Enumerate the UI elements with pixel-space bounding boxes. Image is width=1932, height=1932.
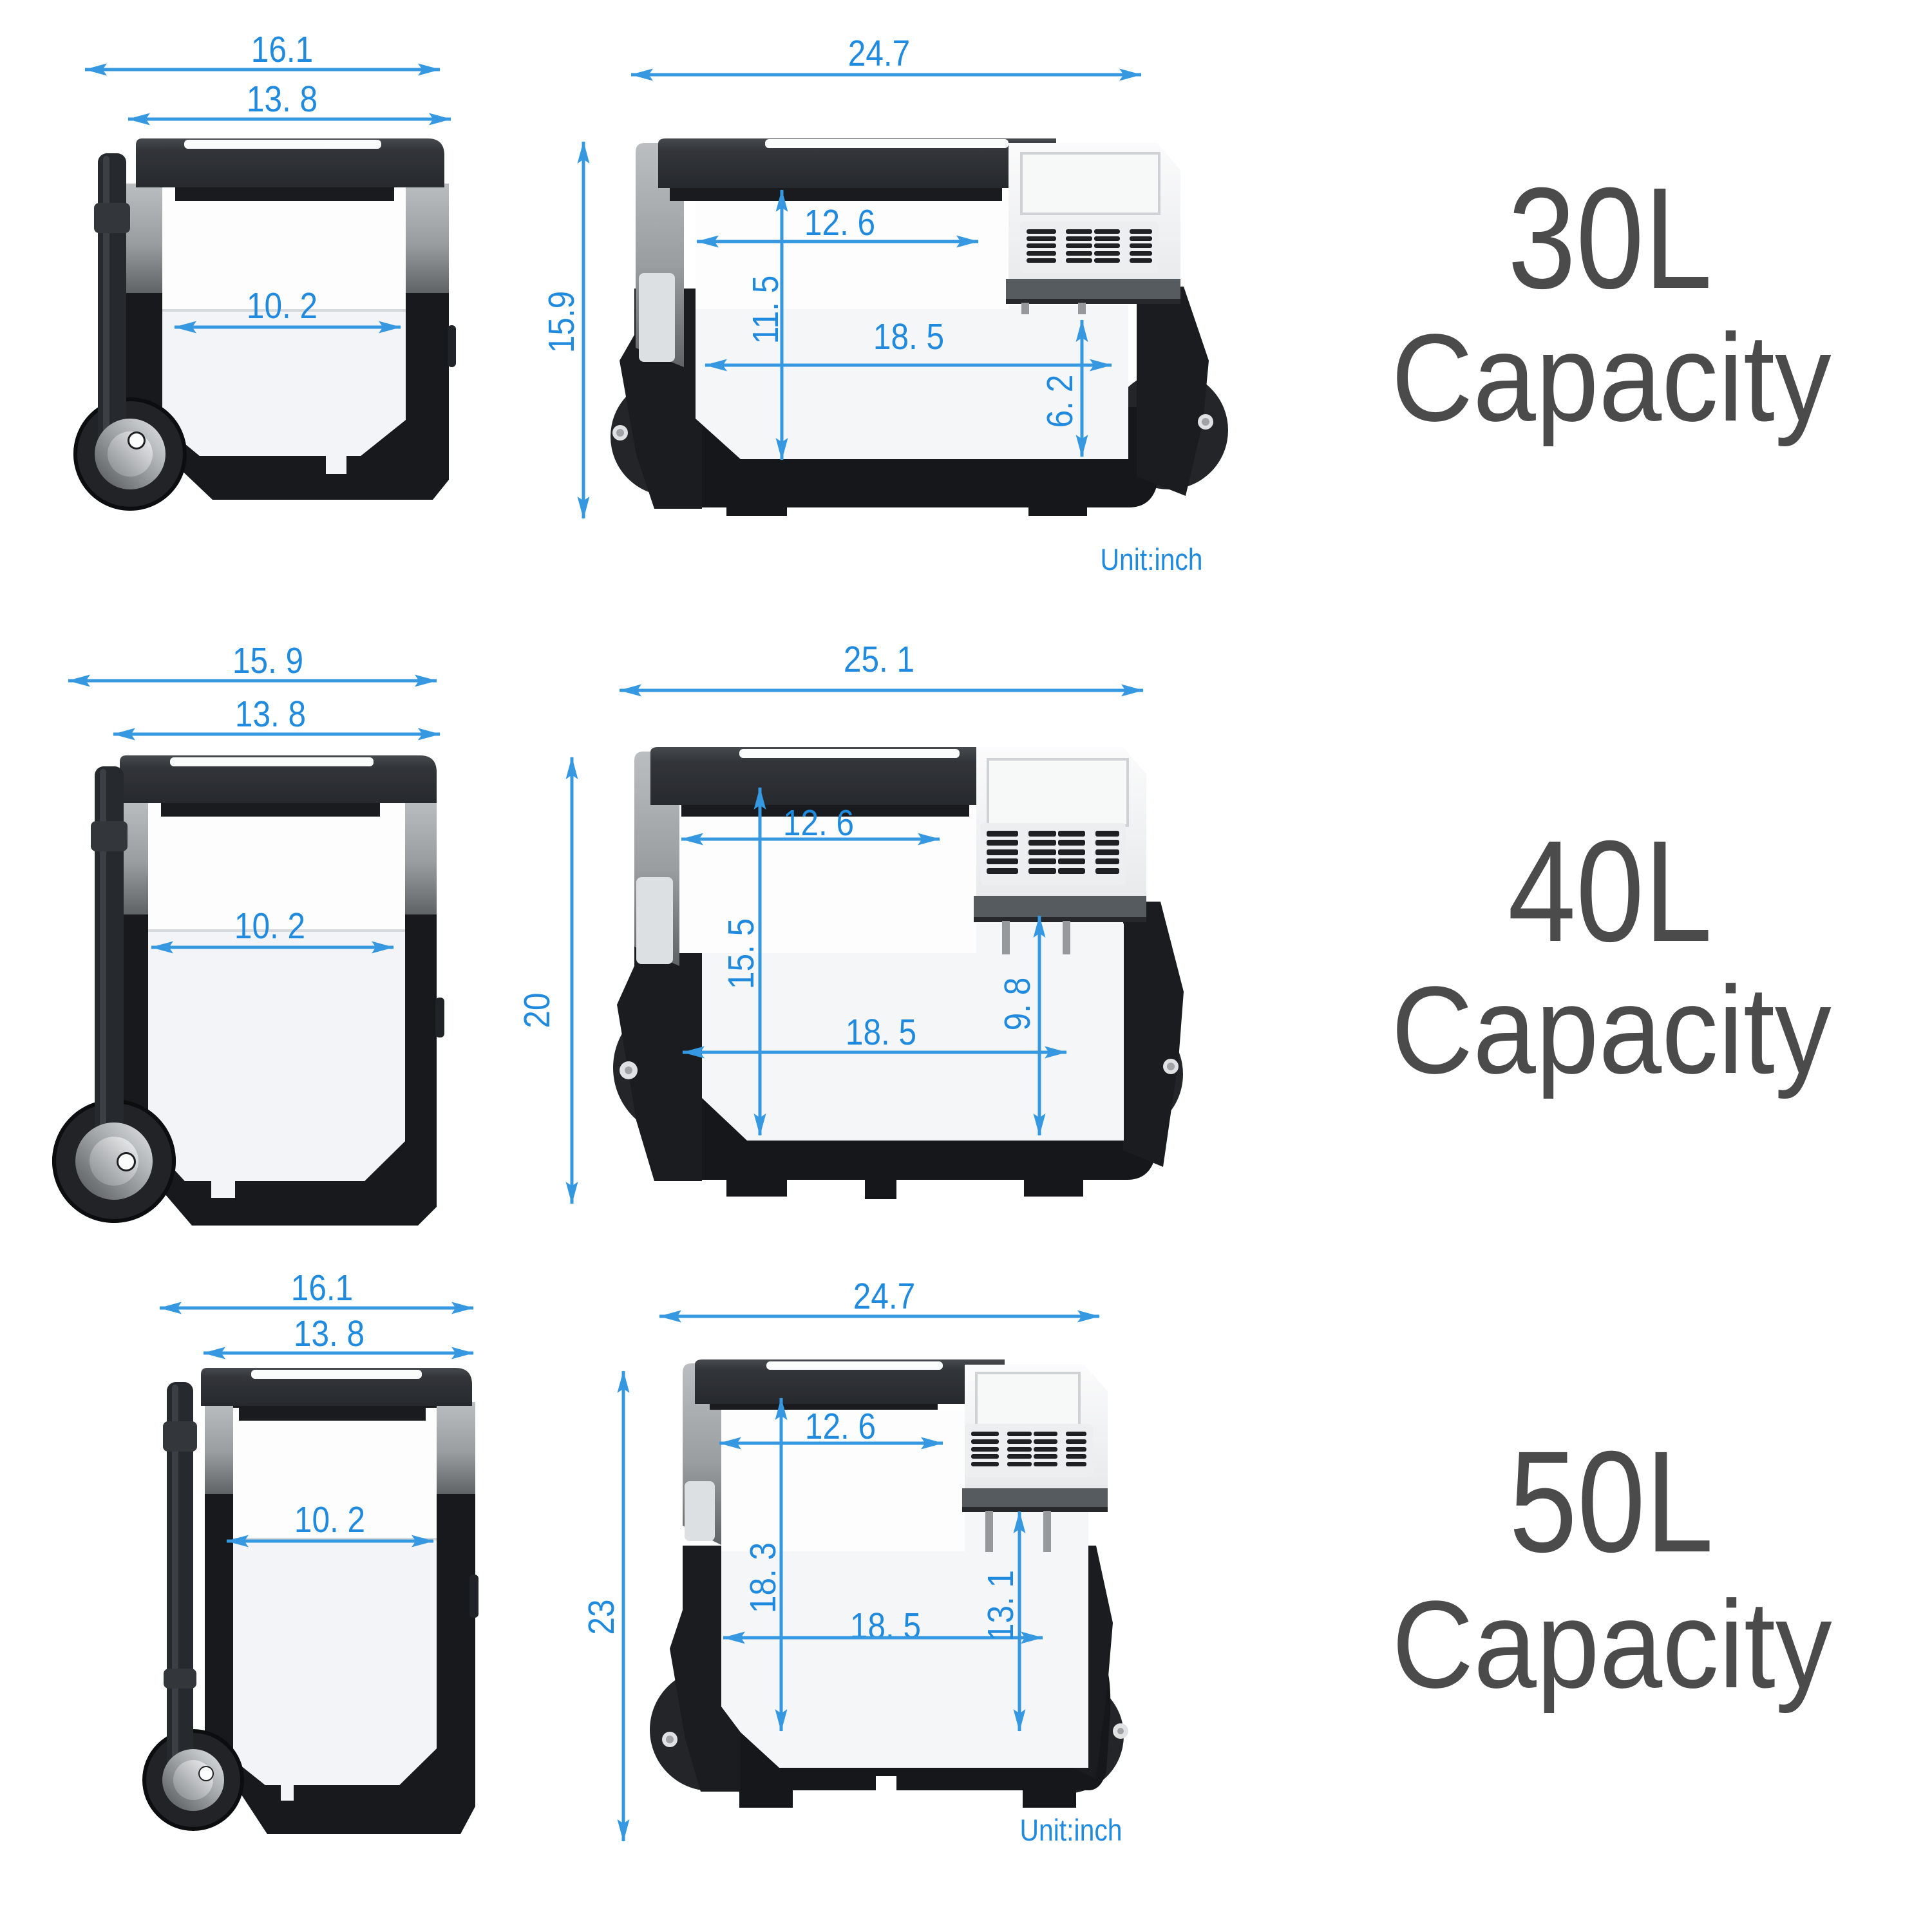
svg-text:15. 9: 15. 9 <box>232 641 303 681</box>
svg-text:13. 8: 13. 8 <box>247 79 317 120</box>
svg-text:6. 2: 6. 2 <box>1040 375 1081 428</box>
svg-text:18. 5: 18. 5 <box>850 1606 921 1647</box>
svg-text:Capacity: Capacity <box>1391 961 1831 1099</box>
svg-text:16.1: 16.1 <box>291 1268 353 1309</box>
svg-text:18. 5: 18. 5 <box>846 1012 916 1053</box>
svg-text:13. 1: 13. 1 <box>981 1570 1021 1641</box>
svg-text:Capacity: Capacity <box>1392 1575 1832 1714</box>
svg-text:18. 5: 18. 5 <box>873 317 944 357</box>
svg-text:23: 23 <box>582 1599 622 1634</box>
svg-text:Unit:inch: Unit:inch <box>1100 543 1202 576</box>
svg-text:25. 1: 25. 1 <box>844 639 914 680</box>
svg-text:12. 6: 12. 6 <box>804 203 875 243</box>
svg-text:40L: 40L <box>1508 811 1712 972</box>
svg-text:10. 2: 10. 2 <box>234 906 305 947</box>
svg-text:20: 20 <box>517 992 558 1028</box>
svg-text:50L: 50L <box>1509 1421 1714 1582</box>
svg-text:24.7: 24.7 <box>848 33 910 74</box>
svg-text:9. 8: 9. 8 <box>998 978 1038 1031</box>
svg-text:Unit:inch: Unit:inch <box>1019 1814 1122 1847</box>
svg-text:10. 2: 10. 2 <box>247 286 317 327</box>
svg-text:18. 3: 18. 3 <box>743 1542 784 1613</box>
svg-text:Capacity: Capacity <box>1391 308 1831 447</box>
svg-text:13. 8: 13. 8 <box>235 694 306 735</box>
svg-text:15.9: 15.9 <box>542 291 582 353</box>
svg-text:30L: 30L <box>1508 158 1712 319</box>
svg-text:12. 6: 12. 6 <box>783 803 854 844</box>
svg-text:15. 5: 15. 5 <box>721 918 762 989</box>
svg-text:16.1: 16.1 <box>251 30 313 70</box>
svg-text:13. 8: 13. 8 <box>294 1314 365 1354</box>
svg-text:11. 5: 11. 5 <box>746 276 786 345</box>
svg-text:12. 6: 12. 6 <box>805 1406 876 1447</box>
svg-text:10. 2: 10. 2 <box>294 1500 365 1540</box>
svg-text:24.7: 24.7 <box>853 1276 915 1317</box>
